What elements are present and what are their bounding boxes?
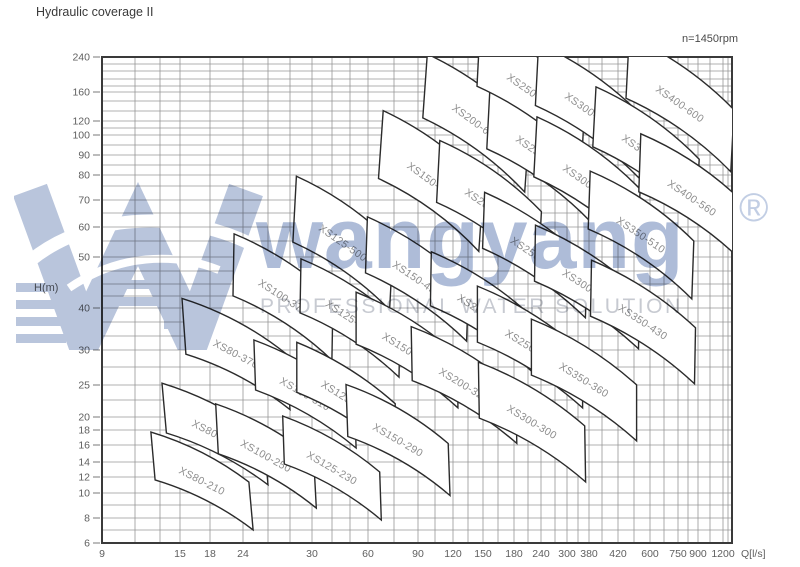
page-title: Hydraulic coverage II: [36, 5, 153, 19]
y-tick-label: 8: [84, 513, 90, 525]
pump-coverage-page: 2401601201009080706050403025201816141210…: [0, 0, 800, 567]
y-axis-labels: 2401601201009080706050403025201816141210…: [72, 52, 100, 550]
y-tick-label: 70: [78, 195, 90, 207]
y-tick-label: 18: [78, 425, 90, 437]
y-tick-label: 100: [72, 130, 90, 142]
y-tick-label: 16: [78, 440, 90, 452]
y-tick-label: 240: [72, 52, 90, 64]
y-axis-unit: H(m): [34, 282, 58, 294]
y-tick-label: 90: [78, 150, 90, 162]
y-tick-label: 12: [78, 472, 90, 484]
y-tick-label: 30: [78, 345, 90, 357]
x-tick-label: 9: [99, 548, 105, 560]
pump-regions: XS80-210XS80-270XS80-370XS100-250XS100-3…: [151, 24, 745, 530]
x-tick-label: 900: [689, 548, 707, 560]
coverage-chart: 2401601201009080706050403025201816141210…: [0, 0, 800, 567]
x-tick-label: 420: [609, 548, 627, 560]
y-tick-label: 120: [72, 116, 90, 128]
x-axis-labels: 9151824306090120150180240300380420600750…: [99, 548, 735, 560]
x-tick-label: 90: [412, 548, 424, 560]
x-tick-label: 600: [641, 548, 659, 560]
y-tick-label: 10: [78, 488, 90, 500]
x-tick-label: 300: [558, 548, 576, 560]
x-tick-label: 24: [237, 548, 249, 560]
x-tick-label: 30: [306, 548, 318, 560]
y-tick-label: 20: [78, 412, 90, 424]
y-tick-label: 25: [78, 380, 90, 392]
x-tick-label: 180: [505, 548, 523, 560]
x-tick-label: 60: [362, 548, 374, 560]
x-tick-label: 240: [532, 548, 550, 560]
x-tick-label: 18: [204, 548, 216, 560]
y-tick-label: 50: [78, 252, 90, 264]
y-tick-label: 6: [84, 538, 90, 550]
y-tick-label: 80: [78, 170, 90, 182]
y-tick-label: 14: [78, 457, 90, 469]
x-tick-label: 150: [474, 548, 492, 560]
x-tick-label: 15: [174, 548, 186, 560]
x-tick-label: 1200: [711, 548, 735, 560]
x-tick-label: 750: [669, 548, 687, 560]
y-tick-label: 40: [78, 303, 90, 315]
speed-note: n=1450rpm: [682, 33, 738, 45]
y-tick-label: 60: [78, 222, 90, 234]
x-tick-label: 120: [444, 548, 462, 560]
x-axis-unit: Q[l/s]: [741, 548, 766, 560]
x-tick-label: 380: [580, 548, 598, 560]
y-tick-label: 160: [72, 87, 90, 99]
